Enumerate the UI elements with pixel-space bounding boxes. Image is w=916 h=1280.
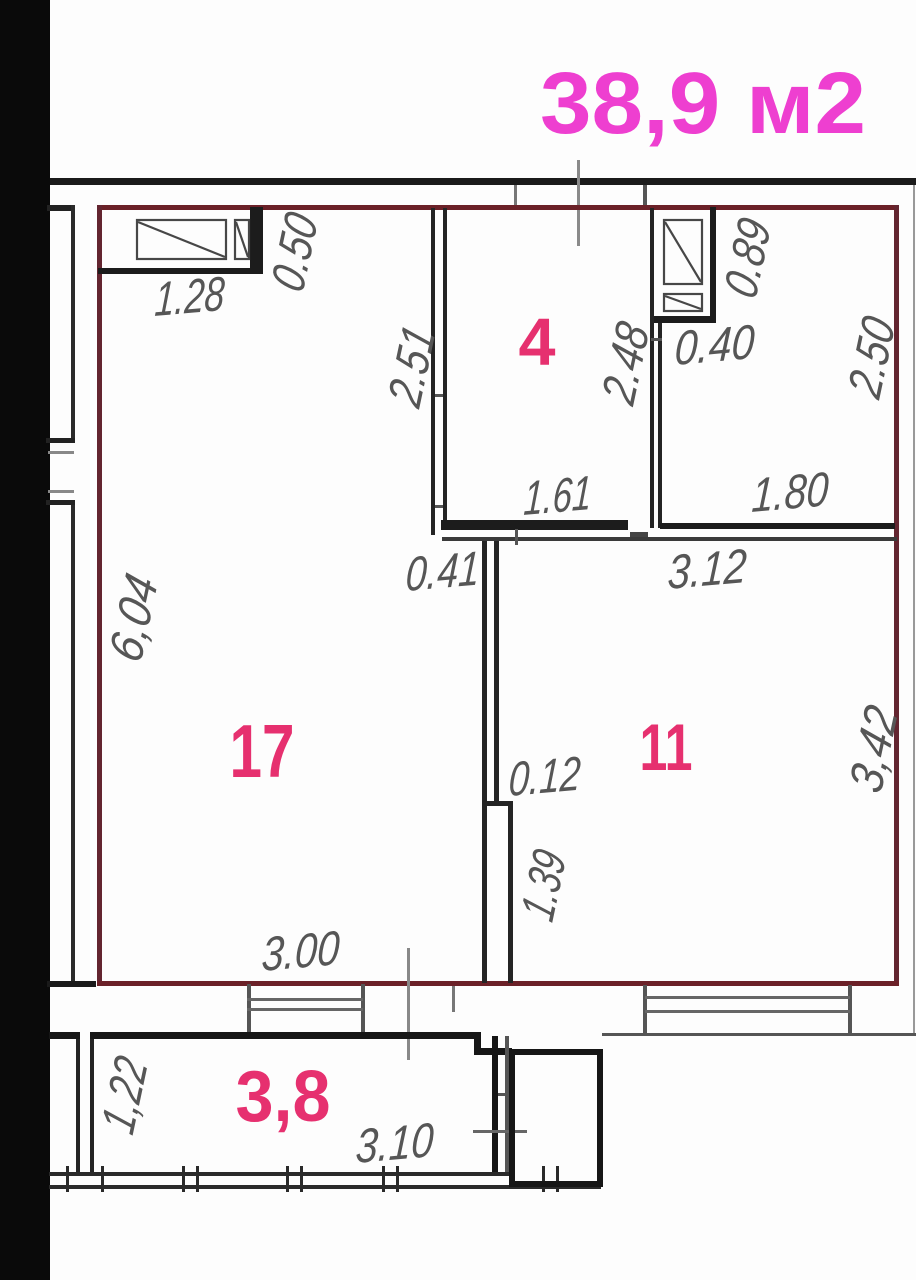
svg-text:4: 4 [519,305,556,380]
svg-text:3.00: 3.00 [260,921,341,982]
svg-text:3.10: 3.10 [354,1113,435,1174]
svg-text:11: 11 [640,710,693,784]
svg-text:0.41: 0.41 [404,541,481,602]
svg-text:1.80: 1.80 [750,462,830,523]
svg-text:38,9 м2: 38,9 м2 [540,55,866,152]
svg-text:3,8: 3,8 [236,1057,331,1137]
svg-text:0.12: 0.12 [507,747,582,807]
svg-text:1.28: 1.28 [153,267,226,327]
svg-text:1.61: 1.61 [522,466,593,526]
svg-text:3.12: 3.12 [666,539,748,600]
svg-text:17: 17 [230,709,295,793]
svg-text:0.40: 0.40 [673,315,756,376]
